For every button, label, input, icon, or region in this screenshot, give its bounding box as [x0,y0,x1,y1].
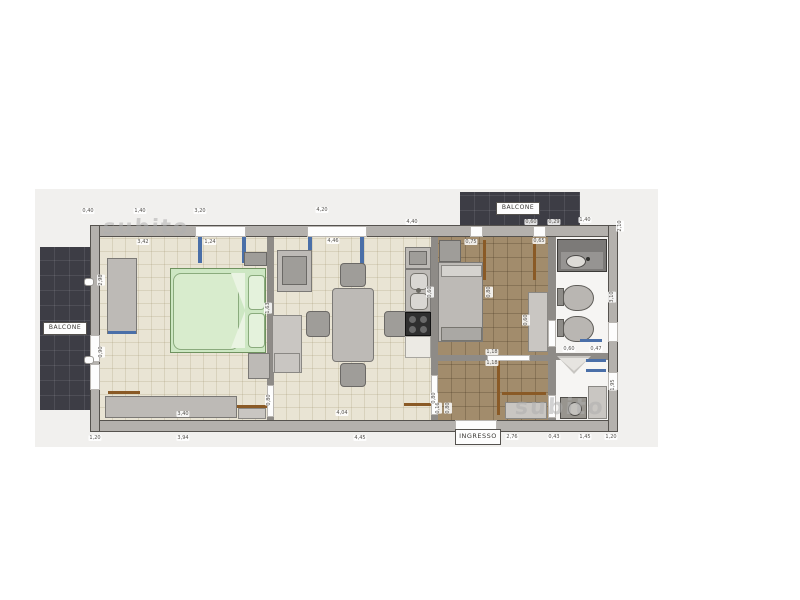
bedroom2-door-leaf [497,361,500,415]
dining-table [332,288,374,362]
bed-fold [231,273,245,310]
bedroom2-wardrobe [528,292,548,352]
outer-wall-bottom [90,420,618,432]
dimension-label: 0,43 [547,434,560,440]
chair-bottom [340,363,366,387]
dimension-label: 2,76 [505,434,518,440]
balcony-left-label: BALCONE [43,322,87,335]
bed-pillow [248,313,265,348]
tv-cabinet-top [282,256,307,285]
wall-mark [84,356,94,364]
wardrobe-door-mark [108,391,140,394]
dimension-label: 1,20 [88,435,101,441]
kitchen-counter [405,336,431,358]
burner [420,316,427,323]
bedroom2-cabinet [439,240,461,262]
sink-faucet [416,288,421,293]
watermark-subito-bottomright: subito [514,395,605,420]
bathroom-window-opening [608,322,618,342]
stove [405,312,431,336]
living-window-opening [307,226,367,237]
living-door-leaf [404,403,431,406]
bedroom-window-opening [195,226,246,237]
laundry-shelf-mark [586,359,606,362]
balcony-top: BALCONE [460,192,580,225]
dimension-label: 1,20 [604,434,617,440]
wall-mark [84,278,94,286]
dimension-label: 1,40 [133,208,146,214]
living-door-opening [431,375,438,415]
bedroom2-balconydoor-opening-2 [533,226,546,237]
chair-left [306,311,330,337]
chair-top [340,263,366,287]
burner [409,326,416,333]
dimension-label: 4,20 [315,207,328,213]
tv-cabinet [277,250,312,292]
burner [420,326,427,333]
bedroom-door-opening [267,385,274,417]
floorplan-screenshot: BALCONE BALCONE [0,0,800,600]
balcony-frenchdoor-leaf-2 [533,240,536,280]
single-bed-foot [441,327,482,341]
single-bed [438,262,483,342]
sideboard-lower [274,353,300,373]
outer-wall-left [90,225,100,432]
dimension-label: 3,94 [176,435,189,441]
bathroom-vanity [557,239,607,272]
bedroom2-door-opening [487,355,530,361]
dimension-label: 1,40 [578,217,591,223]
bathroom-door-opening [548,320,556,347]
bed-duvet [173,273,239,350]
vanity-faucet [586,257,590,261]
double-bed [170,268,266,353]
balcony-frenchdoor-leaf-1 [483,240,486,280]
kitchen-sink [405,269,431,312]
bathroom-threshold [580,339,602,342]
bedroom-nightstand [248,353,270,379]
laundry-shelf-mark [586,369,606,372]
dimension-label: 3,20 [193,208,206,214]
toilet-icon [563,285,594,311]
laundry-window-opening [608,372,618,390]
watermark-subito-topleft: subito [102,215,190,239]
entrance-label: INGRESSO [455,429,501,445]
floorplan-paper: BALCONE BALCONE [35,189,658,447]
single-bed-pillow [441,265,482,277]
dimension-label: 4,45 [353,435,366,441]
bedroom-sidewindow-opening [90,364,100,390]
kitchen-cabinet-top [409,251,427,265]
bedroom-wardrobe-end [238,408,266,419]
bed-fold [231,311,245,348]
balcony-top-label: BALCONE [496,202,540,215]
window-jamb-icon [360,237,364,265]
bedroom-wardrobe-long [105,396,237,418]
dimension-label: 0,40 [81,208,94,214]
kitchen-cabinet [405,247,431,269]
window-jamb-icon [198,237,202,263]
vanity-sink [566,255,586,268]
burner [409,316,416,323]
bedroom-dresser [244,252,267,266]
balcony-left: BALCONE [40,247,90,410]
wardrobe-shelf-mark [108,331,136,334]
sink-basin [410,293,428,310]
bedroom2-balconydoor-opening-1 [470,226,483,237]
dimension-label: 1,45 [578,434,591,440]
bed-pillow [248,275,265,310]
bedroom-wardrobe-tall [107,258,137,334]
